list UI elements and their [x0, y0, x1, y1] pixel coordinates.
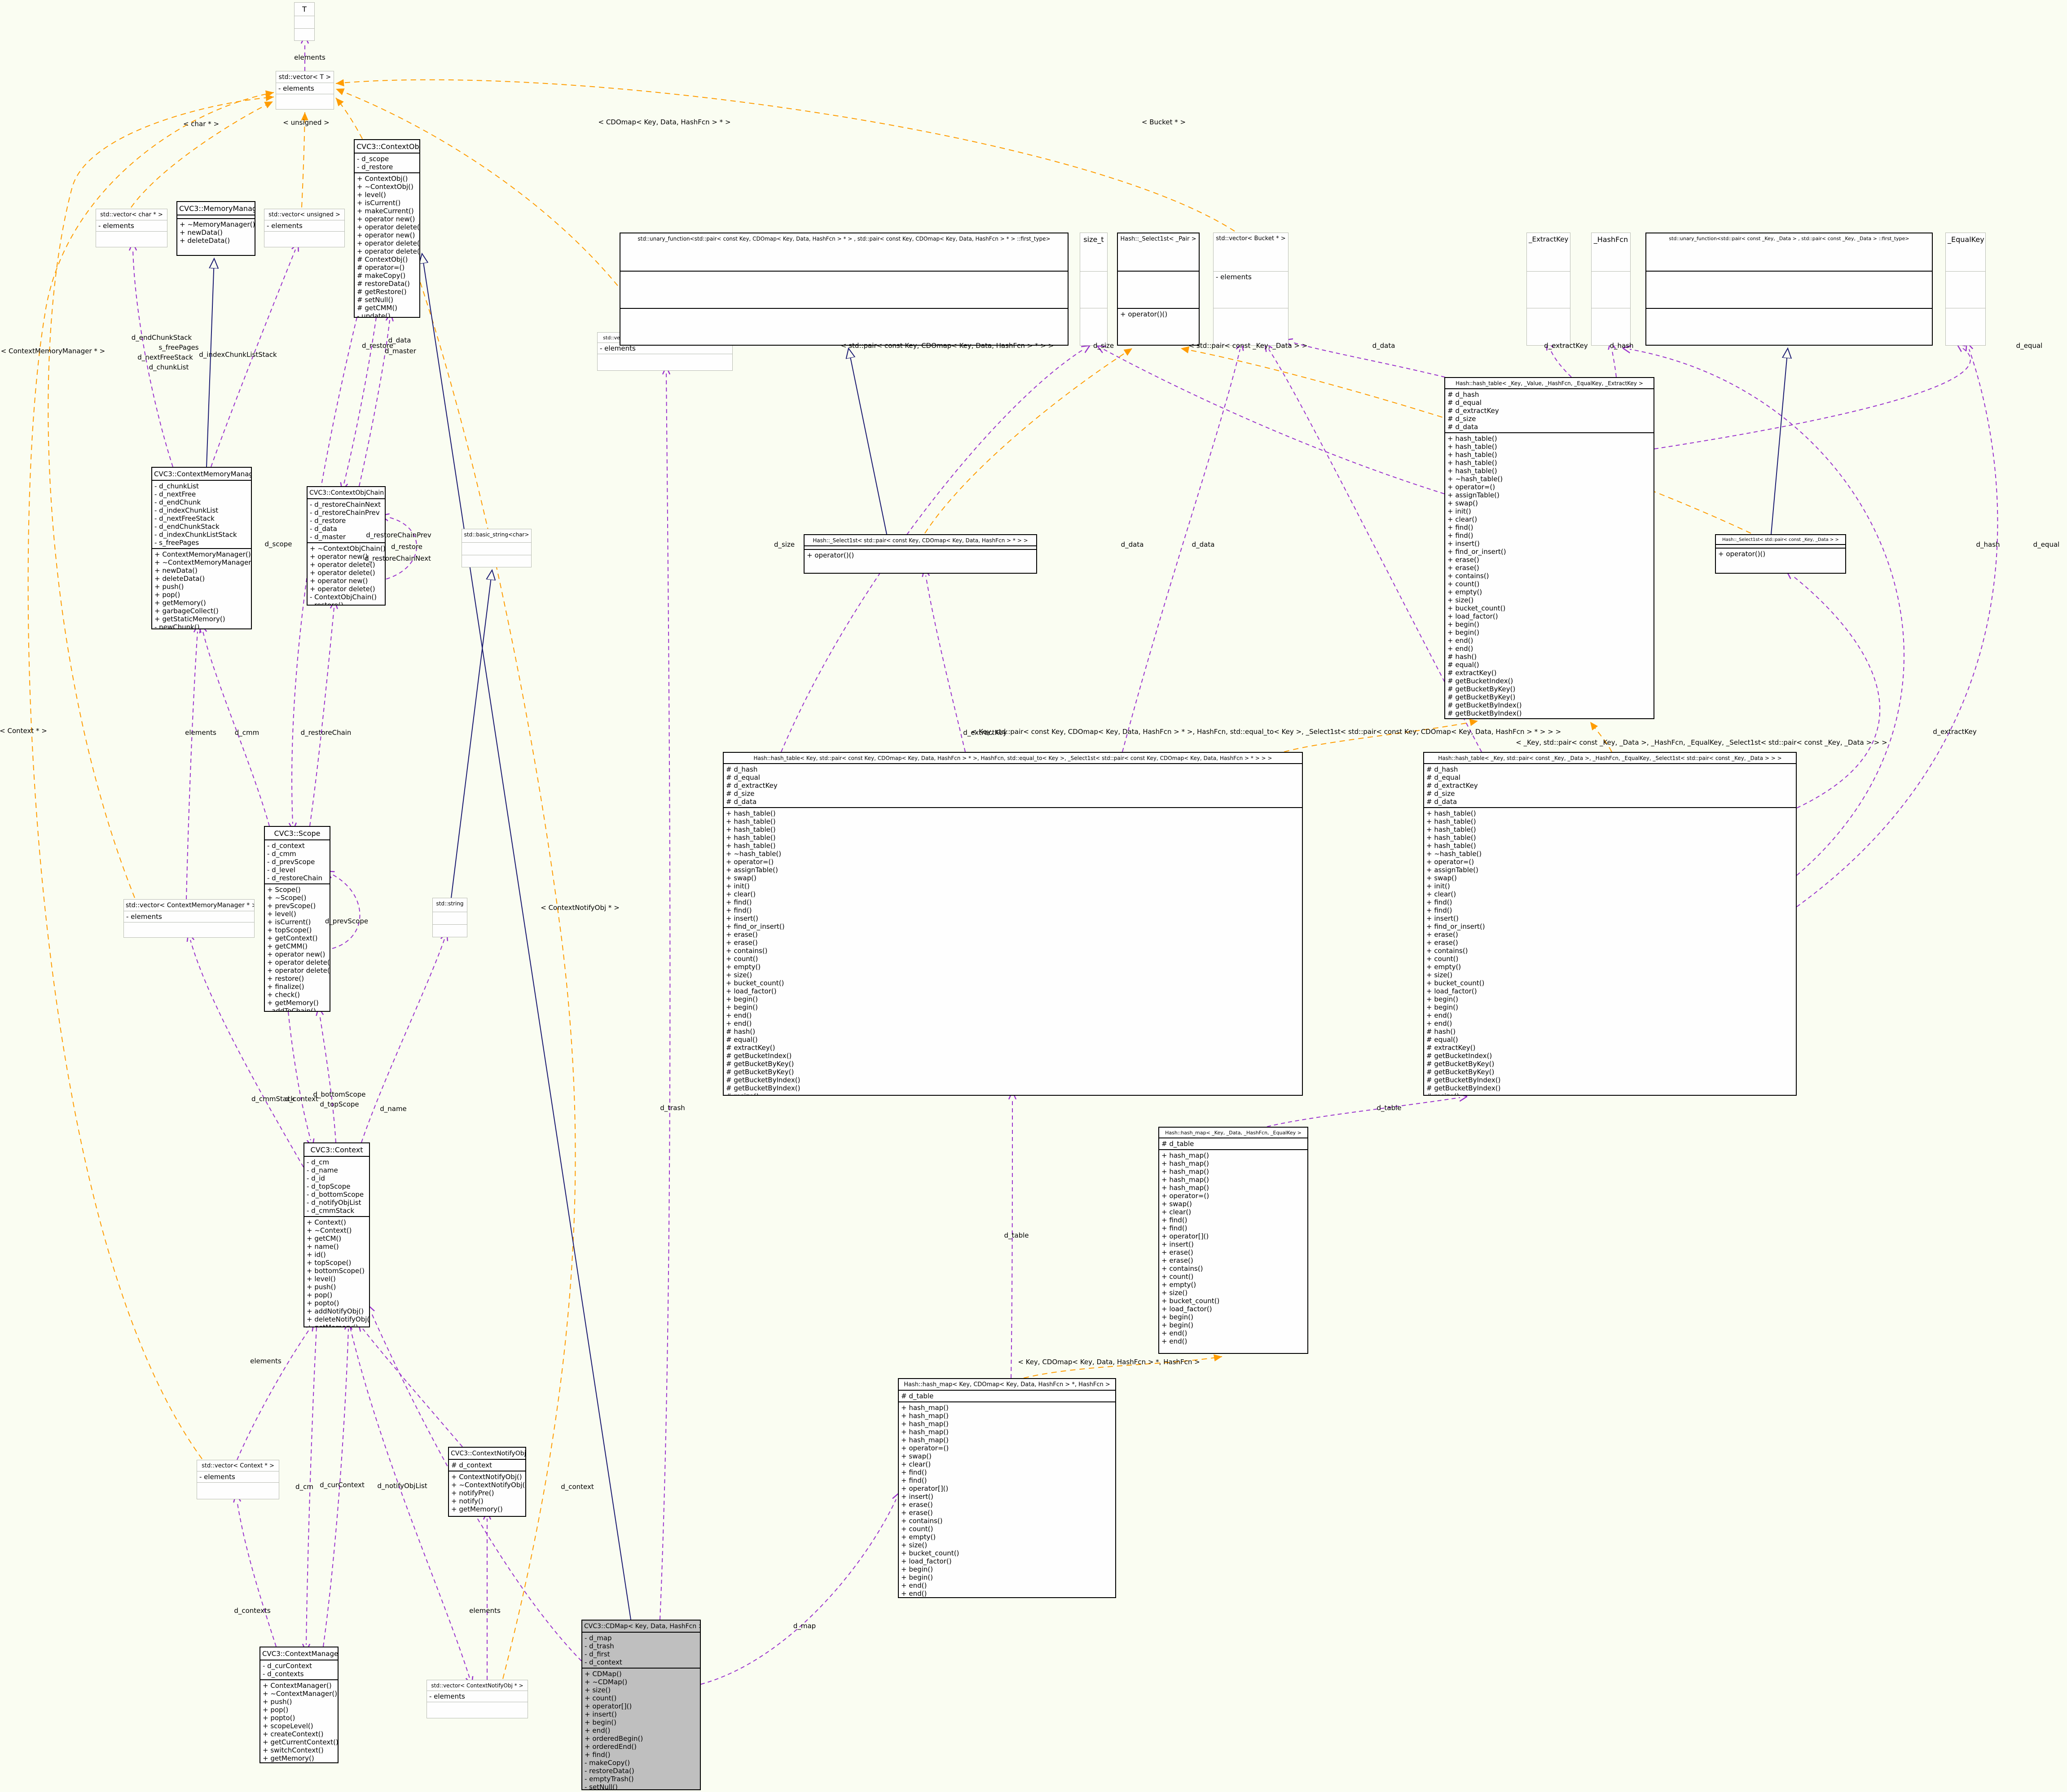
class-methods-row: # hash() [1426, 1028, 1794, 1036]
edge-tableTR-equalKey [1654, 348, 1970, 449]
class-methods-row: + find_or_insert() [726, 922, 1300, 931]
class-members-cdmap: - d_map- d_trash- d_first- d_context [582, 1632, 700, 1668]
class-methods-row: + hash_table() [1426, 809, 1794, 817]
class-methods-row: + find() [585, 1751, 698, 1759]
class-box-cdmap[interactable]: CVC3::CDMap< Key, Data, HashFcn >- d_map… [581, 1620, 701, 1790]
class-box-unaryL[interactable]: std::unary_function<std::pair< const Key… [620, 233, 1069, 346]
class-methods-row: + hash_table() [726, 834, 1300, 842]
class-members-unaryL [620, 271, 1068, 307]
class-members-row: # d_extractKey [1447, 407, 1651, 415]
class-members-sizeT [1080, 271, 1107, 308]
class-methods-row: + erase() [726, 931, 1300, 939]
class-members-row: - d_restore [310, 517, 383, 525]
class-title-memMgr: CVC3::MemoryManager [177, 202, 255, 215]
class-methods-row: + clear() [1447, 515, 1651, 523]
class-methods-unaryL [620, 308, 1068, 345]
class-box-equalKey[interactable]: _EqualKey [1945, 233, 1986, 346]
class-methods-row: + empty() [726, 963, 1300, 971]
class-methods-row: + ~ContextObj() [357, 183, 417, 191]
edge-label: d_size [774, 540, 795, 549]
class-box-vecContext[interactable]: std::vector< Context * >- elements [197, 1460, 279, 1499]
class-methods-row: + bucket_count() [1447, 604, 1651, 612]
class-title-T: T [295, 3, 314, 16]
class-methods-row: + end() [901, 1581, 1113, 1590]
class-methods-row: + swap() [726, 874, 1300, 882]
edge-label: d_table [1004, 1231, 1029, 1239]
class-methods-row: + assignTable() [726, 866, 1300, 874]
class-methods-row: # restoreData() [357, 280, 417, 288]
edge-label: d_name [380, 1105, 407, 1113]
edge-label: < CDOmap< Key, Data, HashFcn > * > [598, 118, 730, 126]
class-methods-row: # extractKey() [1426, 1044, 1794, 1052]
class-methods-row: + find() [901, 1476, 1113, 1485]
class-methods-row: + end() [726, 1019, 1300, 1028]
class-title-mapR: Hash::hash_map< _Key, _Data, _HashFcn, _… [1159, 1128, 1307, 1138]
edge-label: < _Key, std::pair< const _Key, _Data >, … [1516, 738, 1887, 747]
class-members-row: - d_first [585, 1650, 698, 1658]
class-members-row: - d_map [585, 1634, 698, 1642]
class-methods-tableL: + hash_table()+ hash_table()+ hash_table… [724, 807, 1302, 1096]
class-members-row: - d_endChunkStack [154, 523, 249, 531]
class-methods-row: + hash_map() [1161, 1176, 1305, 1184]
edge-scope-objChain [310, 608, 334, 826]
class-methods-row: - restore() [310, 601, 383, 606]
class-methods-row: + contains() [1447, 572, 1651, 580]
edge-label: < Bucket * > [1142, 118, 1186, 126]
class-methods-row: - restoreData() [585, 1767, 698, 1775]
class-methods-row: + insert() [1447, 540, 1651, 548]
class-methods-row: + load_factor() [901, 1557, 1113, 1565]
edge-scope-selfloop [332, 874, 360, 949]
class-methods-row: + size() [1447, 596, 1651, 604]
class-methods-row: + begin() [726, 1003, 1300, 1011]
class-members-row: # d_size [1447, 415, 1651, 423]
class-methods-row: + count() [1447, 580, 1651, 588]
class-title-equalKey: _EqualKey [1946, 233, 1985, 271]
class-box-notifyObj[interactable]: CVC3::ContextNotifyObj# d_context+ Conte… [448, 1447, 526, 1517]
class-members-row: # d_context [451, 1461, 523, 1469]
class-members-row: - d_nextFree [154, 490, 249, 498]
class-members-row: # d_data [1447, 423, 1651, 431]
class-methods-row: + level() [267, 910, 327, 918]
class-title-ctxMgr: CVC3::ContextManager [260, 1647, 338, 1660]
class-members-basicString [462, 542, 531, 554]
class-methods-row: + end() [1426, 1019, 1794, 1028]
class-methods-row: + check() [267, 991, 327, 999]
class-methods-cdmap: + CDMap()+ ~CDMap()+ size()+ count()+ op… [582, 1668, 700, 1790]
edge-cdmap-mapL [701, 1499, 896, 1684]
class-members-vecCMM: - elements [124, 911, 254, 922]
edge-label: elements [250, 1357, 281, 1365]
edge-label: d_curContext [320, 1481, 365, 1489]
edge-label: < unsigned > [283, 119, 329, 127]
class-methods-row: + begin() [901, 1573, 1113, 1581]
class-methods-row: + isCurrent() [357, 199, 417, 207]
class-title-extractKey: _ExtractKey [1527, 233, 1570, 271]
class-methods-contextObj: + ContextObj()+ ~ContextObj()+ level()+ … [355, 172, 419, 318]
class-methods-scope: + Scope()+ ~Scope()+ prevScope()+ level(… [265, 883, 330, 1012]
class-title-tableR: Hash::hash_table< _Key, std::pair< const… [1424, 753, 1796, 763]
class-methods-cmm: + ContextMemoryManager()+ ~ContextMemory… [152, 548, 251, 629]
class-box-selLeft[interactable]: Hash::_Select1st< std::pair< const Key, … [804, 534, 1037, 574]
class-box-extractKey[interactable]: _ExtractKey [1526, 233, 1570, 346]
class-methods-mapL: + hash_map()+ hash_map()+ hash_map()+ ha… [899, 1401, 1115, 1598]
class-box-objChain[interactable]: CVC3::ContextObjChain- d_restoreChainNex… [307, 486, 386, 606]
class-box-vecBucket[interactable]: std::vector< Bucket * >- elements [1213, 233, 1289, 346]
class-methods-row: + find_or_insert() [1426, 922, 1794, 931]
class-methods-row: + erase() [1426, 939, 1794, 947]
class-methods-row: # hash() [726, 1028, 1300, 1036]
class-methods-row: + hash_map() [1161, 1160, 1305, 1168]
class-members-row: - s_freePages [154, 539, 249, 547]
class-methods-vecBucket [1214, 308, 1288, 345]
class-box-unaryR[interactable]: std::unary_function<std::pair< const _Ke… [1645, 233, 1933, 346]
class-members-vecT: - elements [276, 83, 334, 94]
class-box-vecUnsigned[interactable]: std::vector< unsigned >- elements [264, 209, 345, 247]
class-methods-row: + erase() [726, 939, 1300, 947]
class-members-row: - d_indexChunkListStack [154, 531, 249, 539]
class-methods-row: + hash_table() [726, 817, 1300, 826]
class-box-tableTR[interactable]: Hash::hash_table< _Key, _Value, _HashFcn… [1444, 377, 1654, 719]
edge-label: d_size [1093, 342, 1114, 350]
class-box-mapL[interactable]: Hash::hash_map< Key, CDOmap< Key, Data, … [898, 1378, 1116, 1598]
class-members-row: - d_trash [585, 1642, 698, 1650]
class-methods-row: + operator()() [1718, 550, 1843, 558]
edge-label: d_equal [2033, 540, 2060, 549]
class-methods-row: + getMemory() [154, 599, 249, 607]
class-methods-row: + load_factor() [1161, 1305, 1305, 1313]
class-methods-row: + operator=() [1447, 483, 1651, 491]
class-box-context[interactable]: CVC3::Context- d_cm- d_name- d_id- d_top… [303, 1142, 370, 1327]
class-methods-row: # resize() [1447, 717, 1651, 719]
class-methods-row: + operator=() [901, 1444, 1113, 1452]
class-box-memMgr[interactable]: CVC3::MemoryManager+ ~MemoryManager()+ n… [176, 201, 255, 256]
class-methods-row: # getBucketByKey() [1426, 1060, 1794, 1068]
class-methods-row: + operator()() [807, 551, 1034, 559]
edge-tableTR-hashFcn [1612, 348, 1616, 377]
edge-label: d_restoreChainPrev [366, 531, 431, 539]
class-methods-row: + hash_table() [1447, 467, 1651, 475]
class-members-row: - d_indexChunkList [154, 506, 249, 514]
class-members-row: - d_restoreChain [267, 874, 327, 882]
class-title-tableL: Hash::hash_table< Key, std::pair< const … [724, 753, 1302, 763]
edge-label: d_master [385, 347, 416, 355]
class-methods-row: + operator delete() [357, 239, 417, 247]
class-methods-equalKey [1946, 308, 1985, 345]
edge-tableTR-extractKey [1550, 348, 1571, 377]
class-methods-row: + ContextNotifyObj() [451, 1473, 523, 1481]
class-methods-row: + swap() [1161, 1200, 1305, 1208]
class-methods-vecCDO [598, 354, 732, 370]
edge-label: d_topScope [320, 1100, 359, 1108]
class-members-row: - d_scope [357, 155, 417, 163]
class-methods-row: + end() [585, 1726, 698, 1735]
class-methods-row: + ~ContextMemoryManager() [154, 558, 249, 567]
edge-label: elements [294, 53, 325, 61]
tmpl-vecNotify-vecT [336, 98, 576, 1679]
class-box-stdString[interactable]: std::string [432, 898, 467, 937]
class-box-hashFcn[interactable]: _HashFcn [1591, 233, 1631, 346]
class-members-cmm: - d_chunkList- d_nextFree- d_endChunk- d… [152, 480, 251, 548]
class-members-row: # d_table [901, 1392, 1113, 1400]
class-members-mapR: # d_table [1159, 1138, 1307, 1149]
class-methods-row: + push() [263, 1698, 335, 1706]
edge-label: < ContextNotifyObj * > [541, 904, 620, 912]
class-members-row: # d_hash [1447, 391, 1651, 399]
class-methods-row: + operator delete() [310, 585, 383, 593]
class-methods-row: + hash_table() [1426, 817, 1794, 826]
class-methods-row: + operator[]() [585, 1702, 698, 1710]
class-box-tableR[interactable]: Hash::hash_table< _Key, std::pair< const… [1423, 752, 1797, 1096]
class-methods-row: + empty() [901, 1533, 1113, 1541]
class-methods-memMgr: + ~MemoryManager()+ newData()+ deleteDat… [177, 218, 255, 255]
class-members-row: - elements [126, 913, 252, 921]
class-members-row: - elements [1216, 273, 1286, 281]
class-members-extractKey [1527, 271, 1570, 308]
class-methods-row: # getBucketIndex() [726, 1052, 1300, 1060]
class-methods-row: + insert() [1426, 914, 1794, 922]
edge-label: d_restore [391, 543, 422, 551]
class-methods-row: + ~Context() [307, 1226, 367, 1234]
class-members-T [295, 16, 314, 28]
class-methods-stdString [433, 924, 467, 937]
class-title-basicString: std::basic_string<char> [462, 529, 531, 542]
class-methods-row: + count() [585, 1694, 698, 1702]
class-methods-row: - update() [357, 312, 417, 318]
class-methods-row: + size() [1426, 971, 1794, 979]
class-title-contextObj: CVC3::ContextObj [355, 140, 419, 153]
edge-notifyObj-context [363, 1329, 462, 1447]
class-members-row: - d_endChunk [154, 498, 249, 506]
class-methods-row: + isCurrent() [267, 918, 327, 926]
class-methods-row: + swap() [1447, 499, 1651, 507]
class-methods-row: + init() [1447, 507, 1651, 515]
class-methods-row: + hash_map() [901, 1420, 1113, 1428]
edge-label: < std::pair< const Key, CDOmap< Key, Dat… [841, 342, 1054, 350]
class-members-tableR: # d_hash# d_equal# d_extractKey# d_size#… [1424, 763, 1796, 807]
edge-label: d_extractKey [1933, 728, 1976, 736]
class-methods-row: # ContextObj() [357, 255, 417, 264]
class-box-contextObj[interactable]: CVC3::ContextObj- d_scope- d_restore+ Co… [354, 139, 420, 318]
class-box-selRight[interactable]: Hash::_Select1st< std::pair< const _Key,… [1715, 534, 1846, 574]
edge-label: d_data [1372, 342, 1395, 350]
class-methods-unaryR [1646, 308, 1932, 345]
class-methods-row: + bucket_count() [901, 1549, 1113, 1557]
class-methods-row: + hash_table() [726, 826, 1300, 834]
edge-label: d_chunkList [149, 363, 189, 371]
class-box-vecChar[interactable]: std::vector< char * >- elements [96, 209, 167, 247]
class-methods-row: - setNull() [585, 1783, 698, 1790]
class-methods-row: + operator[]() [1161, 1232, 1305, 1240]
class-members-row: - d_contexts [263, 1670, 335, 1678]
class-methods-row: + newData() [154, 567, 249, 575]
class-methods-row: # getBucketByIndex() [726, 1076, 1300, 1084]
class-methods-row: + begin() [1161, 1313, 1305, 1321]
class-box-T[interactable]: T [294, 2, 315, 41]
class-methods-row: + end() [901, 1590, 1113, 1598]
class-methods-row: + size() [1161, 1289, 1305, 1297]
class-methods-row: + begin() [1447, 628, 1651, 637]
edge-label: d_contexts [234, 1607, 270, 1615]
class-methods-row: + end() [1447, 645, 1651, 653]
class-members-row: # d_size [1426, 790, 1794, 798]
class-box-cmm[interactable]: CVC3::ContextMemoryManager- d_chunkList-… [151, 467, 252, 629]
class-methods-row: + notify() [451, 1497, 523, 1505]
class-box-tableL[interactable]: Hash::hash_table< Key, std::pair< const … [723, 752, 1303, 1096]
class-methods-row: + begin() [1426, 995, 1794, 1003]
class-title-cdmap: CVC3::CDMap< Key, Data, HashFcn > [582, 1621, 700, 1632]
class-methods-row: - newChunk() [154, 623, 249, 629]
class-methods-row: + getMemory() [307, 1323, 367, 1327]
class-methods-row: # equal() [726, 1036, 1300, 1044]
class-members-row: - elements [429, 1692, 525, 1700]
class-members-row: - d_id [307, 1174, 367, 1182]
class-methods-mapR: + hash_map()+ hash_map()+ hash_map()+ ha… [1159, 1149, 1307, 1353]
class-title-unaryL: std::unary_function<std::pair< const Key… [620, 233, 1068, 271]
class-title-vecNotify: std::vector< ContextNotifyObj * > [427, 1680, 528, 1691]
class-methods-row: + hash_table() [726, 842, 1300, 850]
class-box-sizeT[interactable]: size_t [1080, 233, 1108, 346]
class-members-scope: - d_context- d_cmm- d_prevScope- d_level… [265, 839, 330, 883]
edge-label: d_table [1377, 1104, 1401, 1112]
edge-ctxMgr-vecContext [237, 1501, 276, 1647]
class-methods-row: + begin() [1426, 1003, 1794, 1011]
class-methods-vecT [276, 94, 334, 109]
class-methods-row: + ContextObj() [357, 175, 417, 183]
class-box-scope[interactable]: CVC3::Scope- d_context- d_cmm- d_prevSco… [264, 826, 330, 1012]
class-methods-row: + find() [1447, 531, 1651, 540]
class-methods-row: + topScope() [267, 926, 327, 934]
edge-label: d_nextFreeStack [137, 353, 193, 361]
class-methods-row: + find() [1426, 906, 1794, 914]
class-methods-row: + deleteData() [154, 575, 249, 583]
class-members-row: # d_table [1161, 1140, 1305, 1148]
class-members-row: # d_equal [726, 773, 1300, 782]
class-methods-row: # operator=() [357, 264, 417, 272]
class-members-row: - d_restore [357, 163, 417, 171]
class-methods-selRight: + operator()() [1716, 548, 1845, 573]
edge-tableTR-sizeT [1104, 349, 1444, 494]
class-box-vecNotify[interactable]: std::vector< ContextNotifyObj * >- eleme… [427, 1680, 528, 1718]
edge-cdmap-vecCDO [660, 373, 670, 1620]
edge-label: < std::pair< const _Key, _Data > > [1189, 342, 1308, 350]
class-methods-row: + name() [307, 1243, 367, 1251]
edge-label: d_cm [295, 1483, 313, 1491]
class-methods-selPair: + operator()() [1118, 308, 1199, 345]
class-methods-row: + deleteNotifyObj() [307, 1315, 367, 1323]
class-methods-row: + find() [1447, 523, 1651, 531]
class-methods-row: # setNull() [357, 296, 417, 304]
class-box-mapR[interactable]: Hash::hash_map< _Key, _Data, _HashFcn, _… [1158, 1127, 1308, 1354]
class-box-vecCMM[interactable]: std::vector< ContextMemoryManager * >- e… [123, 899, 255, 938]
class-methods-row: + size() [585, 1686, 698, 1694]
class-title-selRight: Hash::_Select1st< std::pair< const _Key,… [1716, 535, 1845, 544]
class-methods-row: + hash_table() [1447, 443, 1651, 451]
class-methods-row: + init() [1426, 882, 1794, 890]
edge-tableR-equalKey [1797, 349, 1997, 907]
class-title-unaryR: std::unary_function<std::pair< const _Ke… [1646, 233, 1932, 271]
class-methods-row: + end() [1161, 1329, 1305, 1337]
class-methods-row: + contains() [1426, 947, 1794, 955]
class-methods-row: + pop() [307, 1291, 367, 1299]
class-methods-row: + prevScope() [267, 902, 327, 910]
class-members-row: - d_notifyObjList [307, 1199, 367, 1207]
class-methods-hashFcn [1592, 308, 1630, 345]
class-methods-row: + topScope() [307, 1259, 367, 1267]
class-methods-row: + insert() [726, 914, 1300, 922]
class-methods-row: + bottomScope() [307, 1267, 367, 1275]
class-methods-row: + operator new() [357, 231, 417, 239]
class-methods-row: + hash_table() [1426, 834, 1794, 842]
class-methods-row: + pop() [263, 1706, 335, 1714]
class-methods-row: + contains() [726, 947, 1300, 955]
class-methods-row: # extractKey() [1447, 669, 1651, 677]
class-methods-row: + operator new() [357, 215, 417, 223]
class-methods-row: + load_factor() [726, 987, 1300, 995]
class-members-memMgr [177, 215, 255, 218]
class-members-row: - d_restoreChainNext [310, 501, 383, 509]
class-methods-row: + CDMap() [585, 1670, 698, 1678]
class-methods-row: + notifyPre() [451, 1489, 523, 1497]
class-members-row: # d_data [1426, 798, 1794, 806]
class-methods-row: + hash_table() [1426, 826, 1794, 834]
class-members-row: - d_restoreChainPrev [310, 509, 383, 517]
class-members-row: - d_bottomScope [307, 1190, 367, 1199]
class-members-row: # d_data [726, 798, 1300, 806]
class-box-selPair[interactable]: Hash::_Select1st< _Pair >+ operator()() [1117, 233, 1200, 346]
class-methods-row: + empty() [1161, 1281, 1305, 1289]
class-box-basicString[interactable]: std::basic_string<char> [462, 529, 532, 567]
class-members-row: # d_equal [1447, 399, 1651, 407]
class-methods-row: + operator=() [1161, 1192, 1305, 1200]
class-members-row: # d_size [726, 790, 1300, 798]
class-methods-row: + ~hash_table() [726, 850, 1300, 858]
class-methods-row: + getMemory() [263, 1754, 335, 1762]
edge-label: d_endChunkStack [132, 334, 192, 342]
edge-label: < Context * > [0, 727, 47, 735]
class-title-cmm: CVC3::ContextMemoryManager [152, 468, 251, 480]
class-methods-row: + bucket_count() [726, 979, 1300, 987]
edge-label: d_context [561, 1483, 594, 1491]
edge-label: < Key, std::pair< const Key, CDOmap< Key… [971, 728, 1561, 736]
class-methods-row: + contains() [901, 1517, 1113, 1525]
class-methods-row: + getCurrentContext() [263, 1738, 335, 1746]
class-methods-row: + ~ContextNotifyObj() [451, 1481, 523, 1489]
edge-label: d_bottomScope [313, 1090, 366, 1098]
class-box-ctxMgr[interactable]: CVC3::ContextManager- d_curContext- d_co… [259, 1647, 339, 1763]
class-box-vecT[interactable]: std::vector< T >- elements [276, 71, 334, 110]
class-methods-row: + operator()() [1120, 310, 1196, 318]
class-methods-row: + clear() [1161, 1208, 1305, 1216]
class-methods-row: # getBucketByKey() [1447, 693, 1651, 701]
class-methods-row: + begin() [1161, 1321, 1305, 1329]
class-methods-row: + operator=() [726, 858, 1300, 866]
class-methods-row: # getBucketByKey() [1447, 685, 1651, 693]
class-methods-row: + load_factor() [1426, 987, 1794, 995]
class-members-row: - d_nextFreeStack [154, 514, 249, 523]
edge-label: d_hash [1976, 540, 2000, 549]
class-methods-row: + count() [901, 1525, 1113, 1533]
class-methods-row: + finalize() [267, 983, 327, 991]
edge-label: d_trash [660, 1104, 685, 1112]
edge-label: d_cmm [235, 729, 259, 737]
class-methods-row: + getContext() [267, 934, 327, 942]
class-members-vecBucket: - elements [1214, 271, 1288, 308]
inherit-string-basicString [451, 570, 492, 898]
class-members-hashFcn [1592, 271, 1630, 308]
edge-label: elements [469, 1607, 501, 1615]
edge-mapR-tableR [1267, 1098, 1460, 1127]
